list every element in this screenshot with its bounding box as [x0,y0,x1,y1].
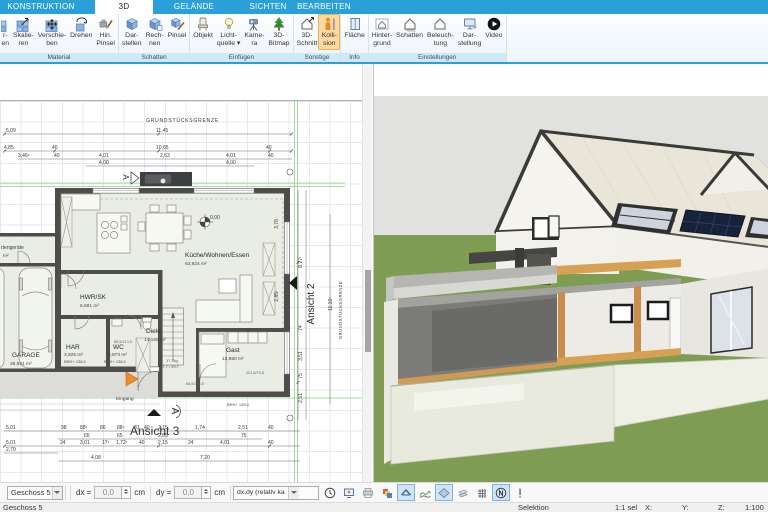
dim-label: 88¹ [117,425,125,431]
group-label-material: Material [0,53,118,62]
porch-area [0,372,160,398]
stairs-label: 17 Stg. [166,358,179,363]
room-area: 3,925 m² [64,352,83,358]
group-einfuegen: Objekt Licht-quelle ▾ Kame-ra 3D-Bitmap … [190,14,293,62]
dy-stepper[interactable] [202,486,211,499]
room-area: 26,931 m² [10,361,32,367]
sill-label: BRH+ 138,0 [104,359,127,364]
room-area: m² [3,253,9,259]
boundary-label: GRUNDSTÜCKSGRENZE [146,117,219,124]
move-icon [44,16,60,32]
application-window: KONSTRUKTION 3D GELÄNDE SICHTEN BEARBEIT… [0,0,768,512]
rotate-icon [73,16,89,32]
room-label: Gast [226,347,240,354]
entrance-label: Eingang [116,396,134,402]
scale-icon [15,16,31,32]
dim-label: 65 [117,433,123,439]
dim-label: 75 [298,373,304,379]
driveway-lines [0,404,160,410]
door-opening [670,298,681,350]
plan-scrollbar-thumb[interactable] [365,270,371,352]
group-schatten: Dar-stellen Rech-nen Pinsel Schatten [119,14,190,62]
lightbulb-icon [221,16,237,32]
room-label: Diele [146,328,161,335]
marker-icon[interactable] [512,485,528,500]
dim-label: 11,45 [156,128,168,134]
tab-gelaende[interactable]: GELÄNDE [163,0,225,14]
door-size-label: 88,5/213,5 [114,340,132,344]
dim-label: 7,20 [200,455,210,461]
dim-label: 40 [144,425,150,431]
house-cut-icon [299,16,315,32]
bottom-toolbar: Geschoss 5 dx = 0,0 cm dy = 0,0 cm dx,dy… [0,482,768,502]
dim-label: 3,51 [298,351,304,361]
display-icon[interactable] [341,485,357,500]
ribbon-tab-bar: KONSTRUKTION 3D GELÄNDE SICHTEN BEARBEIT… [0,0,768,14]
status-selection: Selektion [518,503,549,512]
stairs [163,308,184,365]
sill-label: BRH+ 128,0 [227,402,250,407]
stairs-label: 17,7 / 29,7 [160,364,180,369]
dim-label: 1,74 [195,425,205,431]
chevron-down-icon [52,487,62,499]
status-x: X: [645,503,652,512]
dy-unit: cm [211,488,228,497]
group-label-einfuegen: Einfügen [190,53,292,62]
grid-icon[interactable] [474,485,490,500]
level-label: 0,00 [210,215,220,221]
dim-label: 4,00 [99,160,109,166]
dim-label: 2,51 [298,393,304,403]
dim-label: 8,27¹ [298,256,304,268]
status-scale: 1:100 [745,503,764,512]
house-light-icon [432,16,448,32]
status-z: Z: [718,503,725,512]
entry-canopy [140,172,192,186]
dim-label: 88¹ [80,425,88,431]
ribbon-button-lichtquelle[interactable]: Licht-quelle ▾ [215,15,242,49]
dim-label: 40 [268,153,274,159]
view-letter-a-top: A [121,174,130,180]
ribbon-button-schatten2[interactable]: Schatten [394,15,425,41]
tab-konstruktion[interactable]: KONSTRUKTION [2,0,80,14]
ribbon-button-darstellen[interactable]: Dar-stellen [120,15,144,49]
group-material: r-en Skalie-ren Verschie-ben Drehen Hin.… [0,14,119,62]
dim-label: 2,51 [238,425,248,431]
status-floor: Geschoss 5 [3,503,43,512]
brush-icon [98,16,114,32]
dim-label: 3,76 [274,219,280,229]
cube-calc-icon [147,16,163,32]
dim-label: 40 [268,440,274,446]
sill-label: BRH+ 138,0 [64,359,87,364]
dim-label: 40 [268,425,274,431]
dy-input[interactable]: 0,0 [174,486,202,499]
ribbon-button-kamera[interactable]: Kame-ra [242,15,266,49]
floor-select[interactable]: Geschoss 5 [7,486,63,500]
room-area: 6,681 m² [80,303,99,309]
ribbon: r-en Skalie-ren Verschie-ben Drehen Hin.… [0,14,768,62]
dim-label: 10,65 [156,145,169,151]
dim-label: 2,85¹ [274,290,280,302]
collision-person-icon [321,16,337,32]
ribbon-button-hintergrund[interactable]: Hinter-grund [370,15,394,49]
ribbon-button-beleuchtung[interactable]: Beleuch-tung [425,15,456,49]
door-size-label: 201,8/75,8 [246,371,264,375]
dy-label: dy = [153,488,174,497]
dim-label: 4,85 [4,145,14,151]
dim-label: 2,85 [158,433,168,439]
view-triangle-top-icon [131,172,139,184]
dim-label: 24 [60,440,66,446]
dx-input[interactable]: 0,0 [94,486,122,499]
dim-label: 5,01 [6,440,16,446]
status-bar: Geschoss 5 Selektion 1:1 sel X: Y: Z: 1:… [0,502,768,512]
dim-label: 5,09 [6,128,16,134]
room-label: rtengeräte [1,245,24,251]
dim-label: 1,72¹ [116,440,128,446]
clock-icon[interactable] [322,485,338,500]
surface-icon[interactable] [436,485,452,500]
plan-2d-pane[interactable]: GRUNDSTÜCKSGRENZE GRUNDSTÜCKSGRENZE Küch… [0,64,372,482]
camera-tripod-icon [246,16,262,32]
ribbon-button-skalieren[interactable]: Skalie-ren [11,15,36,49]
tree-icon [271,16,287,32]
view-triangle-2-icon [289,276,297,290]
cube-icon [124,16,140,32]
dim-label: 75 [241,433,247,439]
chevron-down-icon [288,487,299,499]
ribbon-button-flaeche[interactable]: Fläche [342,15,366,41]
dim-label: 24 [188,440,194,446]
ribbon-button-partial[interactable]: r-en [1,15,11,49]
ribbon-button-objekt[interactable]: Objekt [191,15,215,41]
ribbon-button-video[interactable]: Video [483,15,504,41]
dim-label: 40 [52,145,58,151]
dim-label: 4,00 [226,160,236,166]
workspace: GRUNDSTÜCKSGRENZE GRUNDSTÜCKSGRENZE Küch… [0,64,768,482]
dim-label: 3,46¹ [18,153,30,159]
monitor-icon [462,16,478,32]
dim-label: 40 [54,153,60,159]
render-3d-canvas[interactable] [374,96,768,482]
layers-icon[interactable] [455,485,471,500]
cube-brush-icon [169,16,185,32]
terrain-icon[interactable] [417,485,433,500]
group-label-info: Info [341,53,367,62]
ribbon-button-rechnen[interactable]: Rech-nen [144,15,166,49]
play-icon [486,16,502,32]
dim-label: 40 [266,145,272,151]
ribbon-button-verschieben[interactable]: Verschie-ben [36,15,68,49]
dim-label: 65 [84,433,90,439]
dim-label: 4,08 [91,455,101,461]
interior-window [648,302,668,319]
group-label-schatten: Schatten [119,53,189,62]
dim-label: 86 [100,425,106,431]
dx-unit: cm [131,488,148,497]
floor-plan-canvas[interactable]: GRUNDSTÜCKSGRENZE GRUNDSTÜCKSGRENZE Küch… [0,64,372,482]
dx-stepper[interactable] [122,486,131,499]
ribbon-button-kollision[interactable]: Kolli-sion [319,15,339,49]
dim-label: 98 [61,425,67,431]
room-area: 63,924 m² [185,261,207,267]
view-label-ansicht2: Ansicht 2 [306,283,317,325]
dim-label: 2,70 [6,447,16,453]
dim-label: 2,63 [160,153,170,159]
group-sonstige: 3D-Schnitt Kolli-sion Sonstige [294,14,342,62]
house-background-icon [374,16,390,32]
room-label: GARAGE [12,352,40,359]
group-label-einstellungen: Einstellungen [369,53,506,62]
dim-label: 74 [298,325,304,331]
plan-scrollbar[interactable] [362,64,372,482]
room-label: WC [113,344,124,351]
view-letter-a: A [169,408,180,415]
tab-3d[interactable]: 3D [95,0,153,14]
ribbon-button-darstellung[interactable]: Dar-stellung [456,15,483,49]
coordinate-mode-select[interactable]: dx,dy (relativ ka [233,486,319,500]
group-einstellungen: Hinter-grund Schatten Beleuch-tung Dar-s… [369,14,507,62]
dim-label: 2,15 [158,425,168,431]
status-sel-ratio: 1:1 sel [615,503,637,512]
dim-label: 2,15 [158,440,168,446]
dim-label: 4,01 [99,153,109,159]
view-3d-pane[interactable] [373,64,768,482]
interior-window [611,305,632,322]
ribbon-button-3d-bitmap[interactable]: 3D-Bitmap [266,15,291,49]
dim-label: 40 [139,440,145,446]
tab-sichten[interactable]: SICHTEN [238,0,298,14]
dim-label: 11,16¹ [328,297,334,311]
room-label: Küche/Wohnen/Essen [185,252,250,259]
ribbon-button-hin-pinsel[interactable]: Hin.Pinsel [94,15,117,49]
ribbon-button-drehen[interactable]: Drehen [68,15,94,41]
dim-label: 81 [134,425,140,431]
ribbon-button-pinsel[interactable]: Pinsel [166,15,189,41]
status-y: Y: [682,503,689,512]
roof-view-icon[interactable] [398,485,414,500]
door-size-label: 88,5/213,5 [186,382,204,386]
tab-bearbeiten[interactable]: BEARBEITEN [292,0,356,14]
dim-label: 5,01 [6,425,16,431]
room-area: 3,873 m² [108,352,127,358]
layers-3d-icon[interactable] [379,485,395,500]
group-label-sonstige: Sonstige [294,53,341,62]
room-area: 14,169 m² [144,337,166,343]
material-icon [1,16,9,32]
room-label: HWR/SK [80,294,107,301]
boundary-label-right: GRUNDSTÜCKSGRENZE [338,281,343,339]
ribbon-button-3d-schnitt[interactable]: 3D-Schnitt [295,15,320,49]
dim-label: 4,01 [220,440,230,446]
room-area: 13,850 m² [222,356,244,362]
dx-label: dx = [73,488,94,497]
group-info: Fläche Info [341,14,368,62]
dim-label: 4,01 [226,153,236,159]
panel-icon [347,16,363,32]
room-label: HAR [66,344,80,351]
dim-label: 17¹ [102,440,110,446]
printer-icon[interactable] [360,485,376,500]
house-shadow-icon [402,16,418,32]
north-icon[interactable] [493,485,509,500]
chair-icon [195,16,211,32]
dim-label: 3,01 [80,440,90,446]
